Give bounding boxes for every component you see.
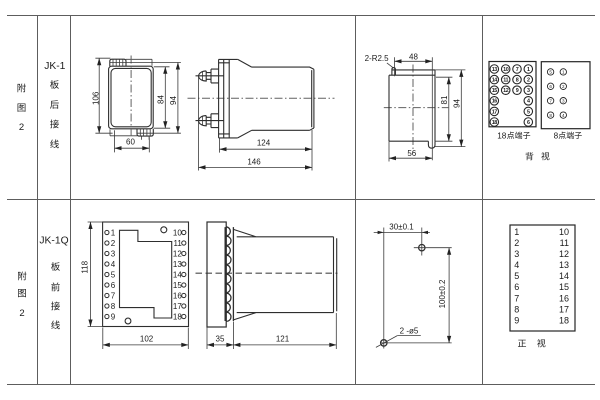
svg-text:5: 5	[549, 70, 552, 75]
svg-text:2: 2	[19, 308, 24, 319]
svg-text:4: 4	[111, 260, 116, 269]
svg-text:2-R2.5: 2-R2.5	[365, 54, 390, 63]
svg-text:9: 9	[111, 312, 116, 321]
svg-text:12: 12	[559, 249, 569, 259]
svg-text:3: 3	[527, 88, 530, 94]
svg-text:2: 2	[562, 84, 565, 89]
svg-text:18: 18	[173, 312, 182, 321]
svg-text:4: 4	[562, 113, 565, 118]
svg-text:1: 1	[562, 70, 565, 75]
svg-text:6: 6	[111, 281, 116, 290]
svg-text:13: 13	[492, 67, 498, 73]
svg-text:1: 1	[111, 228, 116, 237]
svg-text:9: 9	[514, 315, 519, 325]
svg-text:10: 10	[173, 228, 182, 237]
svg-text:121: 121	[276, 335, 290, 344]
svg-text:30±0.1: 30±0.1	[389, 222, 414, 231]
svg-text:14: 14	[559, 271, 569, 281]
svg-text:17: 17	[492, 109, 498, 115]
svg-text:6: 6	[527, 120, 530, 126]
svg-text:6: 6	[514, 282, 519, 292]
svg-text:8: 8	[514, 304, 519, 314]
svg-text:18: 18	[559, 315, 569, 325]
svg-text:15: 15	[492, 88, 498, 94]
svg-text:8: 8	[111, 302, 116, 311]
svg-text:9: 9	[516, 88, 519, 94]
svg-text:4: 4	[527, 99, 530, 105]
svg-text:13: 13	[559, 260, 569, 270]
svg-text:16: 16	[492, 99, 498, 105]
svg-text:1: 1	[514, 227, 519, 237]
svg-text:2: 2	[527, 78, 530, 84]
svg-text:1: 1	[527, 67, 530, 73]
svg-text:17: 17	[173, 302, 182, 311]
svg-text:3: 3	[111, 249, 116, 258]
svg-text:2 -ø5: 2 -ø5	[400, 327, 419, 336]
svg-text:18: 18	[497, 131, 507, 140]
svg-text:11: 11	[173, 239, 182, 248]
svg-text:4: 4	[514, 260, 519, 270]
svg-text:81: 81	[440, 95, 449, 104]
svg-text:11: 11	[560, 238, 569, 248]
svg-text:10: 10	[559, 227, 569, 237]
svg-text:146: 146	[247, 157, 261, 166]
svg-text:60: 60	[126, 138, 135, 147]
svg-text:11: 11	[503, 78, 508, 84]
svg-text:7: 7	[516, 67, 519, 73]
svg-text:12: 12	[173, 249, 182, 258]
svg-text:JK-1Q: JK-1Q	[39, 235, 68, 246]
svg-text:3: 3	[514, 249, 519, 259]
svg-text:18: 18	[492, 120, 498, 126]
svg-text:16: 16	[173, 291, 182, 300]
svg-text:7: 7	[514, 293, 519, 303]
svg-text:35: 35	[216, 335, 225, 344]
svg-text:2: 2	[19, 122, 24, 133]
svg-text:6: 6	[549, 84, 552, 89]
svg-text:48: 48	[409, 52, 418, 61]
svg-text:84: 84	[157, 95, 166, 104]
svg-text:5: 5	[527, 109, 530, 115]
svg-text:8: 8	[549, 113, 552, 118]
svg-text:7: 7	[111, 291, 116, 300]
svg-text:2: 2	[111, 239, 116, 248]
svg-text:14: 14	[492, 78, 498, 84]
svg-text:12: 12	[503, 88, 509, 94]
svg-text:7: 7	[549, 98, 552, 103]
svg-text:14: 14	[173, 270, 182, 279]
svg-text:8: 8	[554, 131, 559, 140]
svg-text:17: 17	[559, 304, 569, 314]
svg-text:56: 56	[407, 149, 416, 158]
svg-text:118: 118	[80, 260, 89, 273]
svg-text:10: 10	[503, 67, 509, 73]
svg-text:3: 3	[562, 98, 565, 103]
svg-text:13: 13	[173, 260, 182, 269]
svg-text:102: 102	[140, 335, 154, 344]
svg-text:15: 15	[173, 281, 182, 290]
svg-text:2: 2	[514, 238, 519, 248]
svg-text:106: 106	[92, 91, 101, 105]
svg-text:15: 15	[559, 282, 569, 292]
svg-text:94: 94	[169, 96, 178, 105]
svg-text:5: 5	[514, 271, 519, 281]
svg-text:100±0.2: 100±0.2	[438, 279, 447, 308]
svg-text:JK-1: JK-1	[44, 61, 65, 72]
svg-text:5: 5	[111, 270, 116, 279]
svg-text:94: 94	[453, 99, 462, 108]
svg-text:16: 16	[559, 293, 569, 303]
svg-text:8: 8	[516, 78, 519, 84]
svg-text:124: 124	[257, 139, 271, 148]
